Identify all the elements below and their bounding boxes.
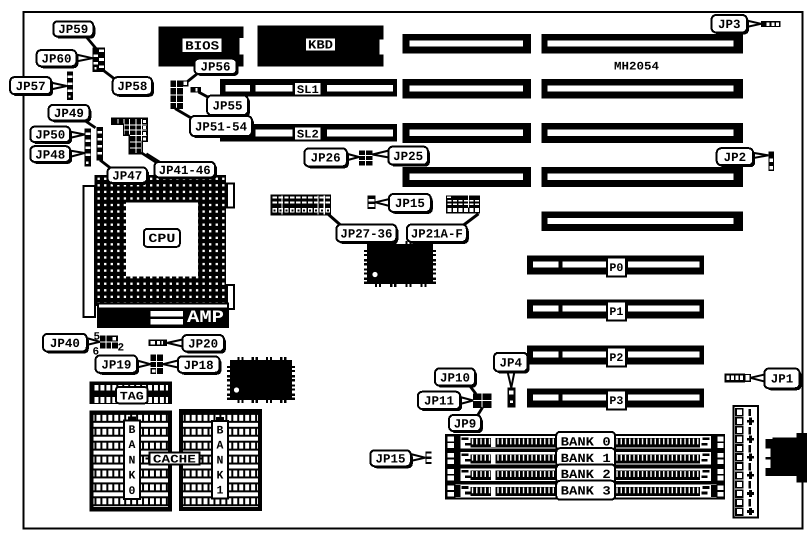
svg-text:2: 2 [118, 343, 125, 355]
svg-text:B: B [217, 425, 224, 438]
svg-text:P2: P2 [609, 352, 623, 365]
svg-text:JP15: JP15 [376, 453, 406, 467]
svg-text:JP48: JP48 [35, 148, 65, 162]
svg-text:JP4: JP4 [499, 356, 522, 370]
svg-text:JP1: JP1 [771, 373, 794, 387]
svg-text:JP47: JP47 [112, 169, 142, 183]
svg-text:5: 5 [94, 332, 101, 344]
svg-text:JP26: JP26 [311, 152, 341, 166]
svg-text:JP50: JP50 [35, 129, 65, 143]
svg-text:JP58: JP58 [117, 80, 147, 94]
svg-text:K: K [129, 470, 136, 483]
svg-text:JP51-54: JP51-54 [195, 120, 247, 134]
svg-text:JP21A-F: JP21A-F [411, 227, 463, 241]
svg-text:BIOS: BIOS [185, 39, 220, 53]
svg-text:B: B [129, 424, 136, 437]
svg-text:SL2: SL2 [297, 129, 319, 142]
svg-text:JP57: JP57 [16, 80, 46, 94]
svg-text:JP2: JP2 [724, 151, 747, 165]
svg-text:JP15: JP15 [395, 197, 425, 211]
svg-text:P1: P1 [609, 306, 623, 319]
svg-text:JP49: JP49 [54, 107, 84, 121]
svg-text:P3: P3 [609, 395, 623, 408]
svg-text:JP11: JP11 [424, 395, 454, 409]
svg-text:JP25: JP25 [393, 150, 423, 164]
svg-text:JP55: JP55 [212, 99, 242, 113]
svg-text:JP56: JP56 [200, 61, 230, 75]
svg-text:6: 6 [93, 347, 100, 359]
svg-text:JP60: JP60 [41, 52, 71, 66]
svg-text:P0: P0 [609, 262, 623, 275]
svg-text:N: N [217, 455, 224, 468]
svg-text:AMP: AMP [187, 308, 224, 328]
svg-text:JP10: JP10 [440, 371, 470, 385]
svg-text:A: A [129, 439, 136, 452]
svg-text:CPU: CPU [148, 232, 175, 246]
svg-text:JP18: JP18 [184, 359, 214, 373]
svg-text:JP27-36: JP27-36 [340, 227, 392, 241]
svg-text:JP41-46: JP41-46 [159, 164, 211, 178]
svg-text:JP40: JP40 [50, 337, 80, 351]
svg-text:JP20: JP20 [188, 338, 218, 352]
svg-text:SL1: SL1 [297, 84, 319, 97]
svg-text:JP59: JP59 [58, 23, 88, 37]
svg-text:TAG: TAG [120, 390, 144, 403]
svg-text:JP3: JP3 [718, 18, 741, 32]
svg-text:1: 1 [217, 485, 224, 498]
svg-text:KBD: KBD [308, 39, 334, 53]
svg-text:K: K [217, 470, 224, 483]
svg-text:BANK 3: BANK 3 [561, 484, 611, 498]
svg-text:CACHE: CACHE [153, 454, 196, 467]
svg-text:JP9: JP9 [454, 417, 477, 431]
svg-text:N: N [129, 454, 136, 467]
svg-text:MH2054: MH2054 [614, 61, 659, 74]
svg-text:JP19: JP19 [101, 358, 131, 372]
svg-text:0: 0 [129, 485, 136, 498]
svg-text:A: A [217, 440, 224, 453]
